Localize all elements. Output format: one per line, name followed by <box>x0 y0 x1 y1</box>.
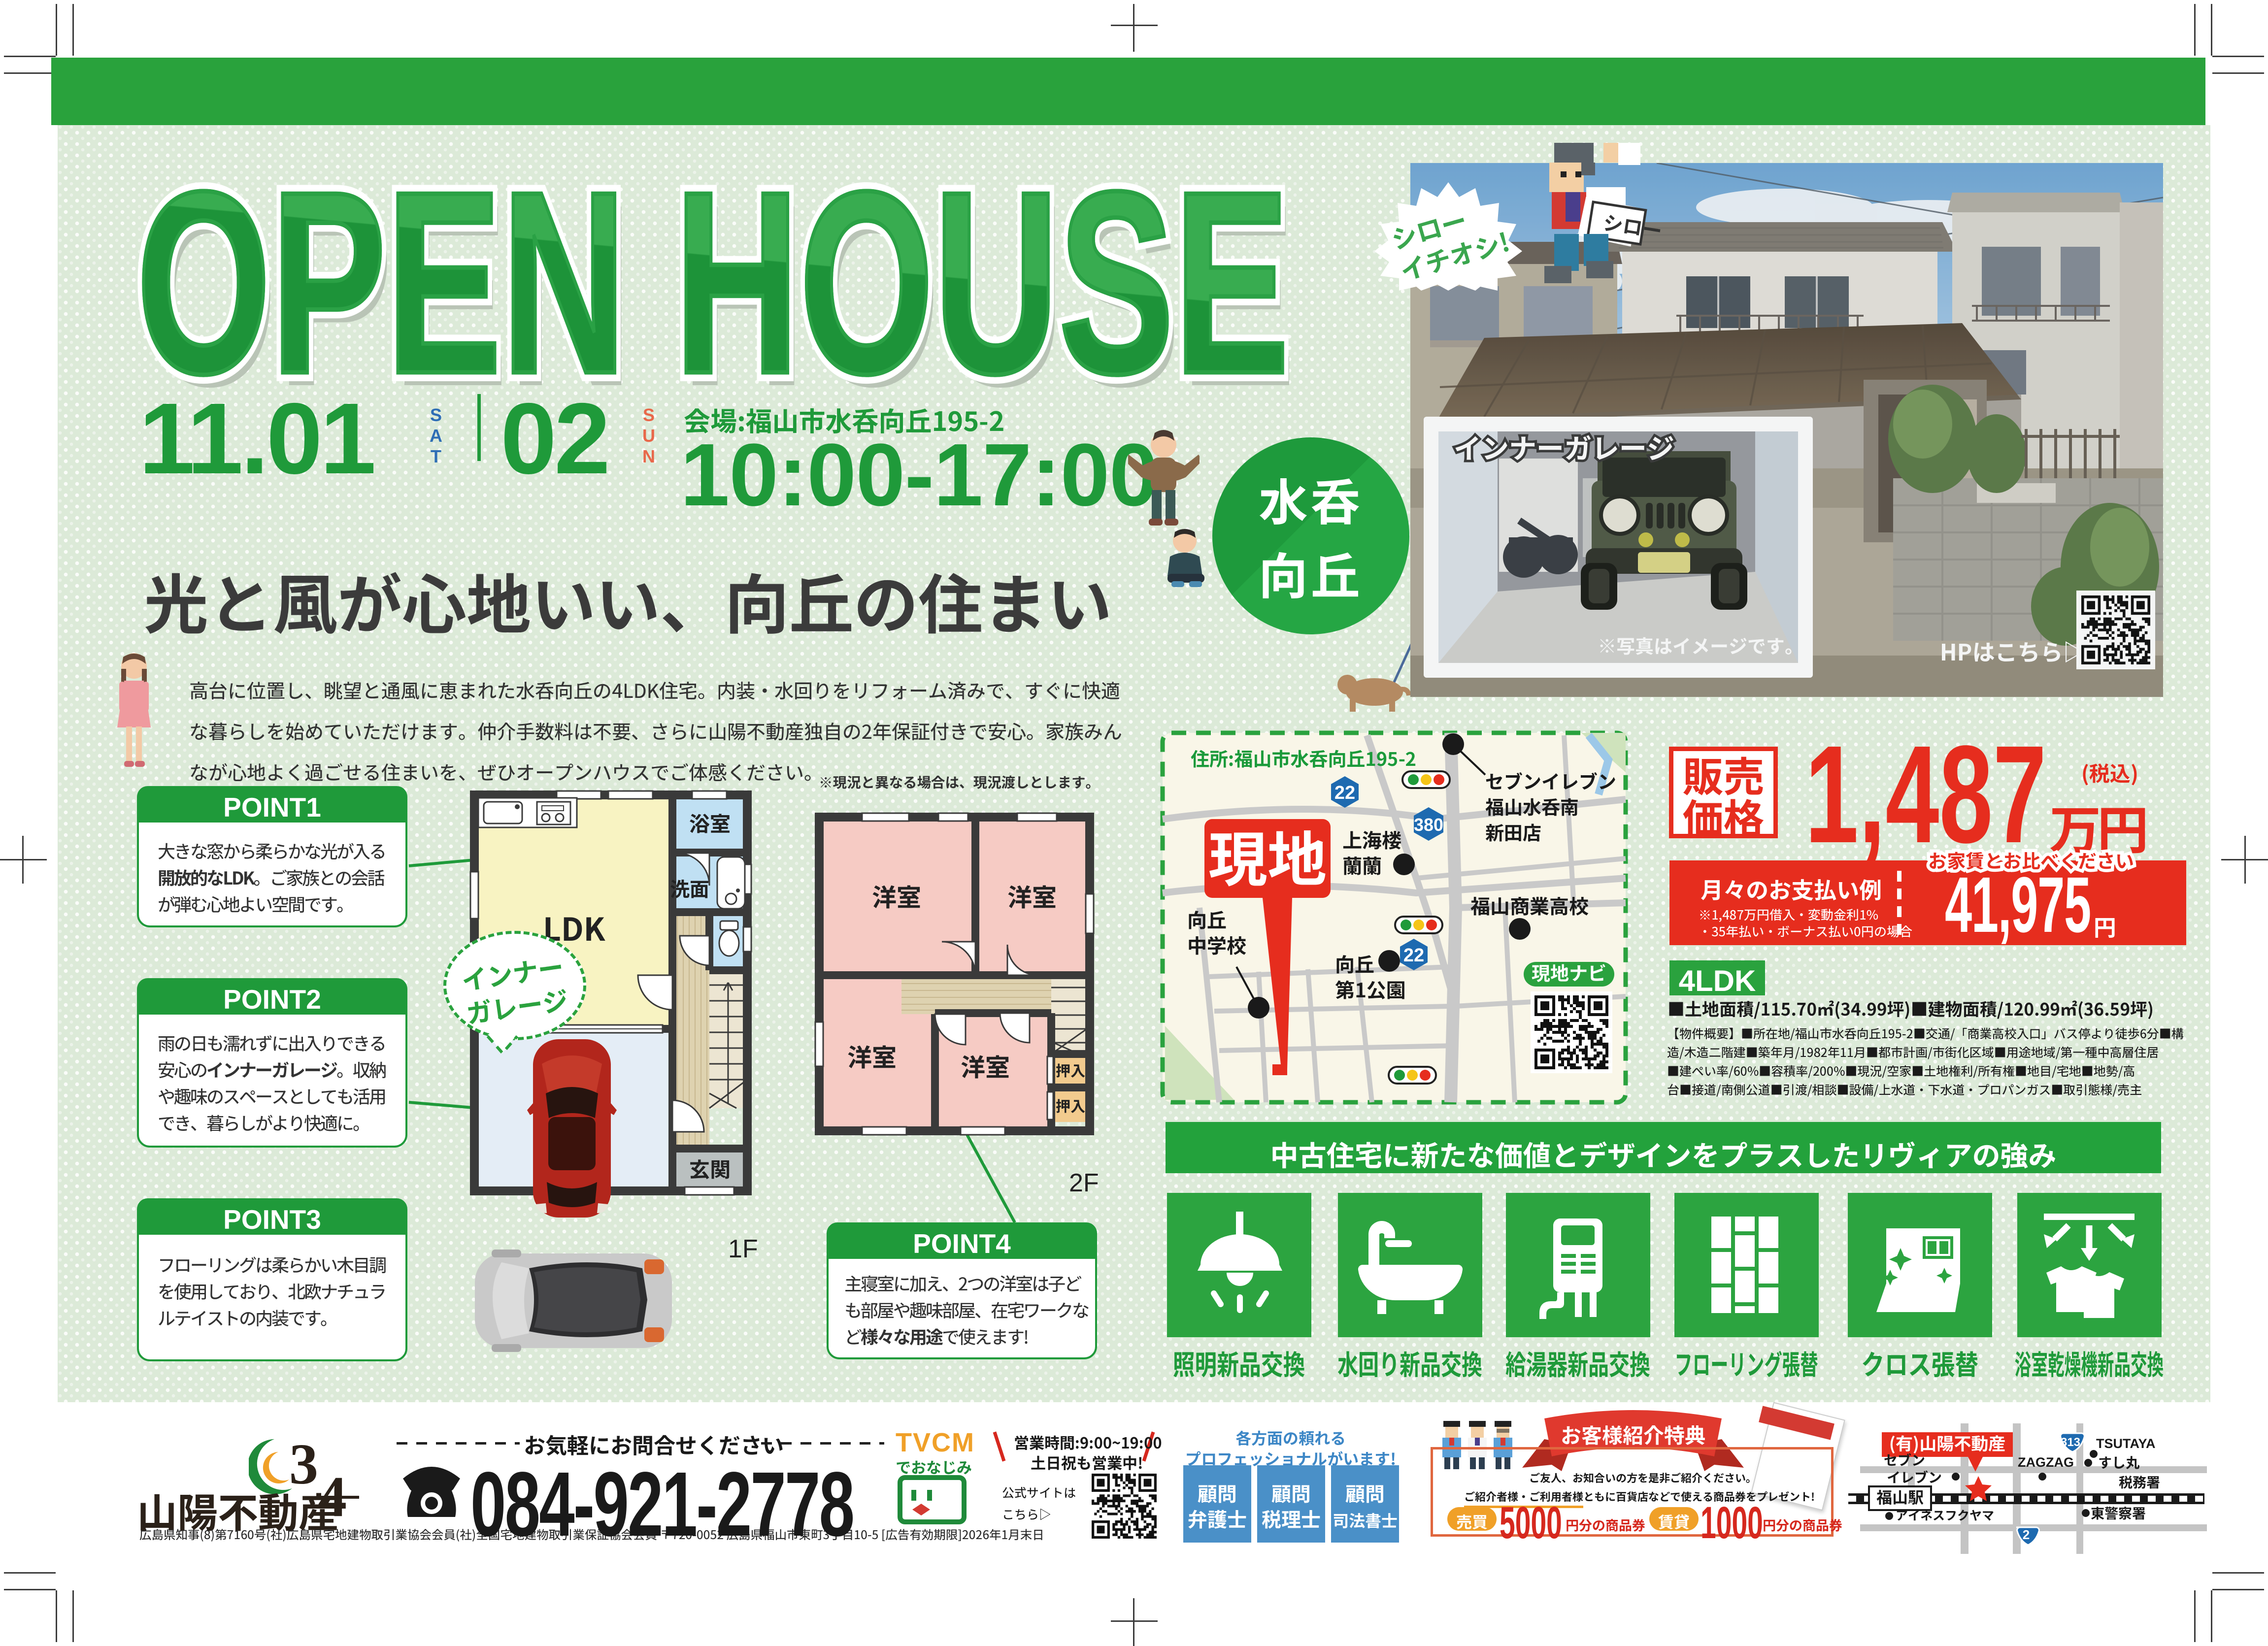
svg-text:現地ナビ: 現地ナビ <box>1532 958 1606 986</box>
svg-text:税務署: 税務署 <box>2119 1472 2160 1492</box>
svg-text:新田店: 新田店 <box>1485 818 1541 845</box>
svg-text:中学校: 中学校 <box>1187 930 1246 959</box>
svg-text:住所:福山市水呑向丘195-2: 住所:福山市水呑向丘195-2 <box>1191 744 1416 771</box>
svg-text:東警察署: 東警察署 <box>2091 1503 2146 1523</box>
svg-text:向丘: 向丘 <box>1335 949 1374 978</box>
svg-text:洗面: 洗面 <box>670 874 709 902</box>
svg-text:イレブン: イレブン <box>1887 1467 1942 1487</box>
svg-text:福山駅: 福山駅 <box>1876 1485 1924 1508</box>
svg-text:22: 22 <box>1334 783 1355 803</box>
svg-text:洋室: 洋室 <box>847 1038 897 1074</box>
svg-text:380: 380 <box>1414 815 1443 835</box>
svg-text:玄関: 玄関 <box>689 1153 731 1184</box>
svg-text:洋室: 洋室 <box>961 1048 1010 1084</box>
svg-text:向丘: 向丘 <box>1187 905 1227 933</box>
svg-text:蘭蘭: 蘭蘭 <box>1342 851 1382 879</box>
svg-text:福山商業高校: 福山商業高校 <box>1470 891 1589 920</box>
svg-text:313: 313 <box>2061 1436 2080 1449</box>
svg-text:福山水呑南: 福山水呑南 <box>1485 792 1579 820</box>
svg-text:セブン: セブン <box>1884 1450 1925 1470</box>
svg-text:22: 22 <box>1403 945 1424 966</box>
svg-text:浴室: 浴室 <box>689 808 731 838</box>
svg-text:2: 2 <box>2023 1527 2030 1542</box>
svg-text:第1公園: 第1公園 <box>1335 975 1406 1003</box>
svg-text:お客様紹介特典: お客様紹介特典 <box>1561 1419 1705 1449</box>
svg-text:洋室: 洋室 <box>1007 878 1057 914</box>
svg-text:すし丸: すし丸 <box>2098 1452 2140 1472</box>
svg-text:現地: 現地 <box>1208 812 1327 898</box>
svg-text:アイネスフクヤマ: アイネスフクヤマ <box>1896 1506 1994 1524</box>
svg-text:TSUTAYA: TSUTAYA <box>2096 1436 2156 1451</box>
svg-text:ZAGZAG: ZAGZAG <box>2018 1455 2074 1470</box>
svg-text:押入: 押入 <box>1056 1059 1085 1081</box>
svg-text:セブンイレブン: セブンイレブン <box>1485 767 1616 794</box>
svg-text:洋室: 洋室 <box>872 878 921 914</box>
svg-text:押入: 押入 <box>1056 1094 1085 1116</box>
svg-text:上海楼: 上海楼 <box>1342 825 1401 854</box>
